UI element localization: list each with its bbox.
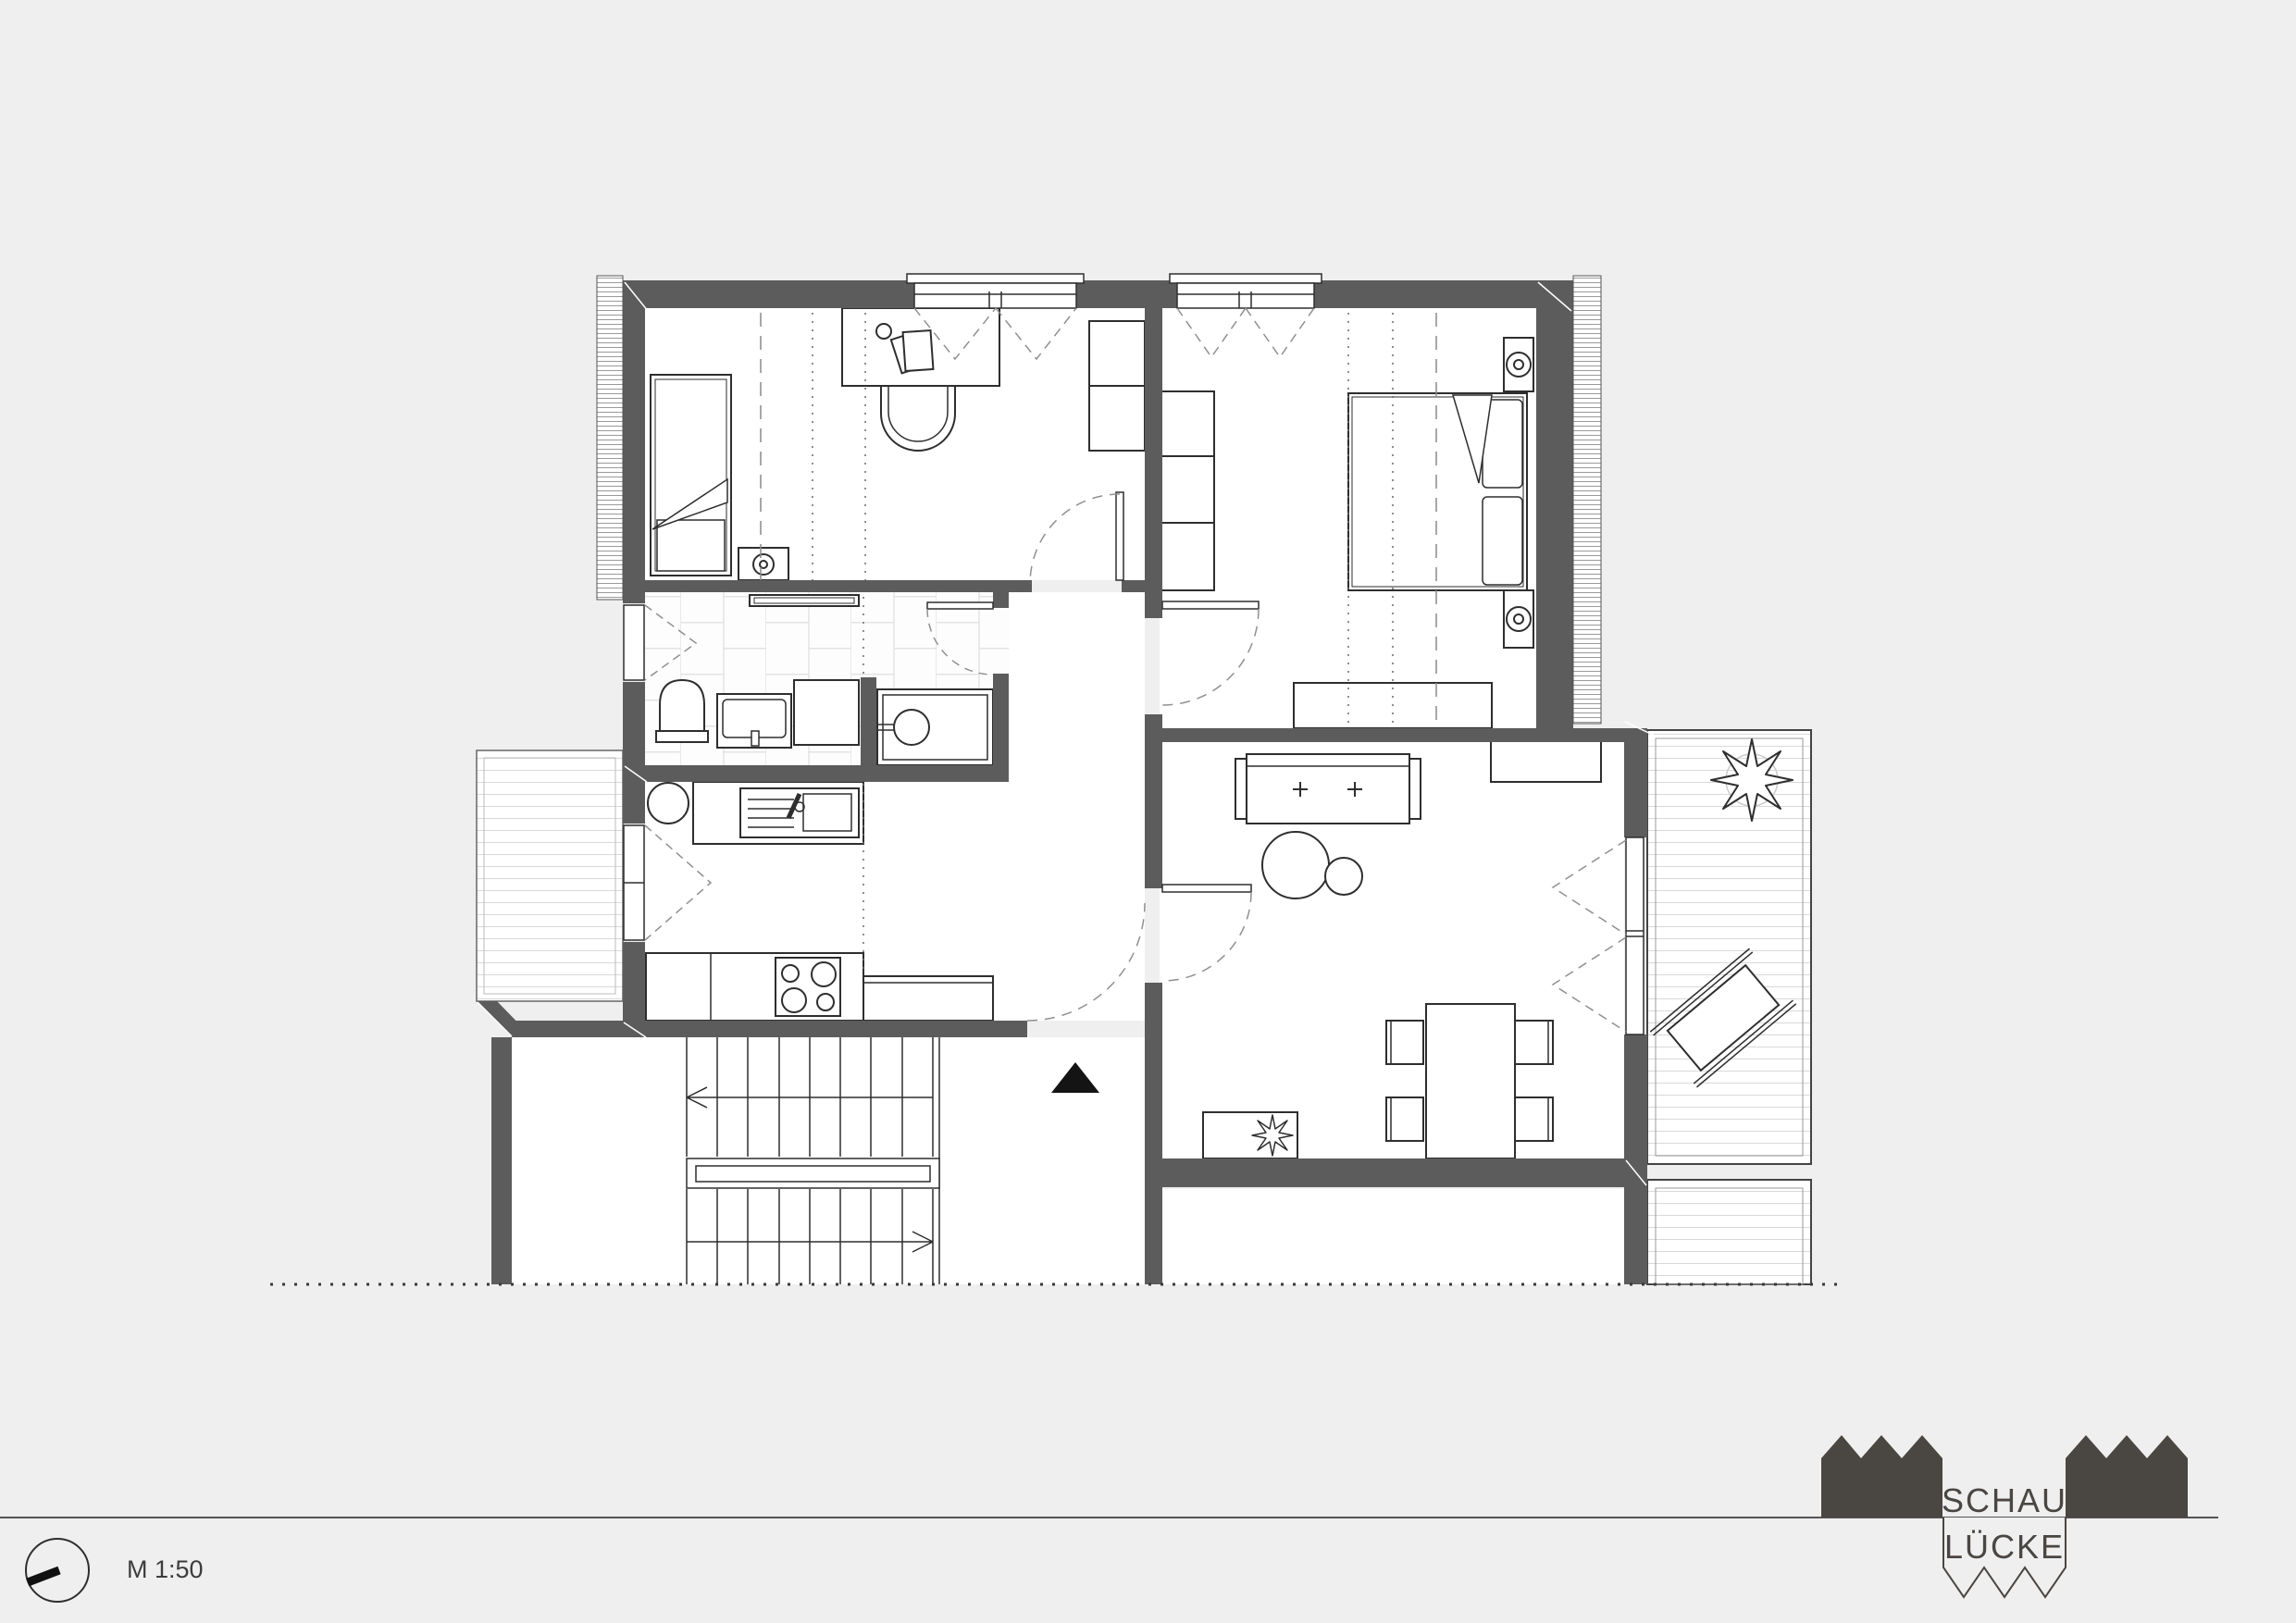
stair-landing-rail (687, 1158, 939, 1188)
schauluecke-logo: SCHAU LÜCKE (1821, 1435, 2188, 1597)
double-bed (1348, 393, 1527, 590)
sofa-armrest (1235, 759, 1247, 819)
basin-faucet (751, 731, 759, 746)
logo-text-schau: SCHAU (1942, 1481, 2067, 1519)
single-bed (651, 375, 731, 576)
factory-skyline-icon (2066, 1435, 2188, 1518)
floor-plan-svg: M 1:50 SCHAU LÜCKE (0, 0, 2296, 1623)
terrace-plant-icon (1711, 739, 1793, 821)
sofa (1247, 754, 1409, 824)
nightstand (1504, 590, 1533, 648)
sofa-armrest (1409, 759, 1421, 819)
balcony-west (477, 750, 623, 1001)
dining-table (1426, 1004, 1515, 1158)
logo-text-luecke: LÜCKE (1944, 1528, 2065, 1566)
toilet (660, 680, 704, 738)
shelf-box (1160, 523, 1214, 590)
wardrobe-box (1089, 386, 1145, 451)
footer: M 1:50 SCHAU LÜCKE (0, 1435, 2218, 1602)
kitchen-stool (648, 783, 689, 824)
shower-head (894, 710, 929, 745)
wardrobe-box (1089, 321, 1145, 386)
toilet-tank (656, 731, 708, 742)
sideboard (1491, 740, 1601, 782)
floor-plan-page: M 1:50 SCHAU LÜCKE (0, 0, 2296, 1623)
washing-machine (794, 680, 859, 745)
scale-label: M 1:50 (127, 1555, 204, 1583)
shelf-box (1160, 456, 1214, 523)
plant-icon (1252, 1115, 1293, 1156)
shelf-box (1160, 391, 1214, 456)
factory-skyline-icon (1821, 1435, 1942, 1518)
nightstand (1504, 338, 1533, 391)
towel-radiator (750, 595, 859, 606)
side-table (1325, 858, 1362, 895)
coffee-table (1262, 832, 1329, 898)
lower-room-floor (1162, 1189, 1624, 1284)
terrace-east (1647, 730, 1811, 1284)
compass-icon (26, 1539, 89, 1602)
